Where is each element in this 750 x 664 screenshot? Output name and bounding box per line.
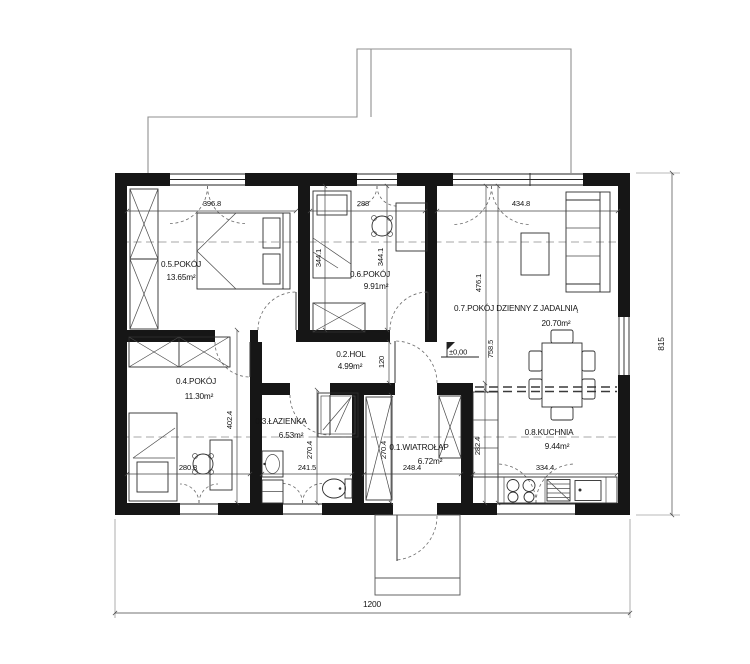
- door-r04: [215, 342, 250, 377]
- room-area-r05: 13.65m²: [167, 273, 196, 282]
- wall-r05-r06: [298, 186, 310, 342]
- dim-r08-width: 334.4: [536, 463, 554, 472]
- window-r04: [180, 484, 218, 514]
- dim-r01-height: 270.4: [379, 441, 388, 459]
- dining-table: [529, 330, 595, 420]
- level-mark-text: ±0,00: [449, 348, 467, 357]
- wardrobe-r06: [313, 303, 365, 332]
- room-label-r02: 0.2.HOL: [336, 350, 366, 359]
- room-label-r01: 0.1.WIATROŁAP: [389, 443, 449, 452]
- room-label-r06: 0.6.POKÓJ: [350, 269, 390, 279]
- door-r05: [258, 292, 296, 330]
- washbasin: [262, 451, 283, 477]
- dim-r06-width: 288: [357, 199, 369, 208]
- dimension-lines: [127, 186, 618, 503]
- windows: [170, 173, 629, 514]
- cooktop: [507, 480, 535, 503]
- single-bed-r04: [129, 413, 177, 501]
- room-area-r06: 9.91m²: [364, 282, 389, 291]
- room-area-r07: 20.70m²: [542, 319, 571, 328]
- wall-hall-south: [262, 383, 290, 395]
- dim-r03-width: 241.5: [298, 463, 316, 472]
- door-entrance: [396, 515, 437, 561]
- door-r06: [390, 292, 428, 330]
- window-right-wall: [619, 317, 629, 375]
- room-area-r01: 6.72m²: [418, 457, 443, 466]
- dim-r08-height: 282.4: [473, 437, 482, 455]
- desk-r06: [396, 203, 427, 251]
- dim-r04-height: 402.4: [225, 411, 234, 429]
- floor-plan-drawing: ±0,00 0.5.POKÓJ 13.65m² 0.6.POKÓJ 9.91m²…: [0, 0, 750, 664]
- room-area-r03: 6.53m²: [279, 431, 304, 440]
- coffee-table: [521, 233, 549, 275]
- dim-overall-height: 815: [656, 337, 666, 351]
- kitchen-sink: [547, 480, 601, 502]
- room-area-r02: 4.99m²: [338, 362, 363, 371]
- toilet: [323, 479, 353, 498]
- dim-overall-width: 1200: [363, 599, 382, 609]
- dim-r05-width: 396.8: [203, 199, 221, 208]
- level-mark: ±0,00: [441, 342, 479, 357]
- wall-left: [115, 173, 127, 515]
- dim-r07-width: 434.8: [512, 199, 530, 208]
- bathroom-cabinet: [262, 480, 283, 503]
- dim-r07-height-full: 758.5: [486, 340, 495, 358]
- dim-r06-height: 344.1: [376, 248, 385, 266]
- room-label-r08: 0.8.KUCHNIA: [525, 428, 575, 437]
- room-label-r07: 0.7.POKÓJ DZIENNY Z JADALNIĄ: [454, 303, 579, 313]
- wall-right: [618, 173, 630, 317]
- wall-wiatrolap-kitchen: [461, 395, 473, 503]
- dim-r07-height-upper: 476.1: [474, 274, 483, 292]
- dim-r05-height: 344.1: [314, 249, 323, 267]
- floor-plan-canvas: ±0,00 0.5.POKÓJ 13.65m² 0.6.POKÓJ 9.91m²…: [0, 0, 750, 664]
- double-bed: [197, 213, 290, 289]
- room-area-r08: 9.44m²: [545, 442, 570, 451]
- dim-hall-width: 120: [377, 356, 386, 368]
- dim-r04-width: 280.8: [179, 463, 197, 472]
- room-label-r05: 0.5.POKÓJ: [161, 259, 201, 269]
- dim-r03-height: 270.4: [305, 441, 314, 459]
- door-wiatrolap-hall: [395, 341, 437, 383]
- kitchen-tall-units: [473, 392, 498, 477]
- window-bathroom: [283, 484, 322, 515]
- wall-hall-north: [127, 330, 215, 342]
- desk-chair-r06: [372, 216, 393, 237]
- dim-r01-width: 248.4: [403, 463, 421, 472]
- roof-outline: [148, 49, 571, 173]
- room-label-r03: 0.3.ŁAZIENKA: [255, 417, 307, 426]
- room-area-r04: 11.30m²: [185, 392, 214, 401]
- furniture: [129, 189, 617, 503]
- room-labels: 0.5.POKÓJ 13.65m² 0.6.POKÓJ 9.91m² 0.7.P…: [161, 259, 579, 466]
- wardrobe-r05: [130, 189, 158, 329]
- entrance-porch: [375, 515, 460, 595]
- room-label-r04: 0.4.POKÓJ: [176, 376, 216, 386]
